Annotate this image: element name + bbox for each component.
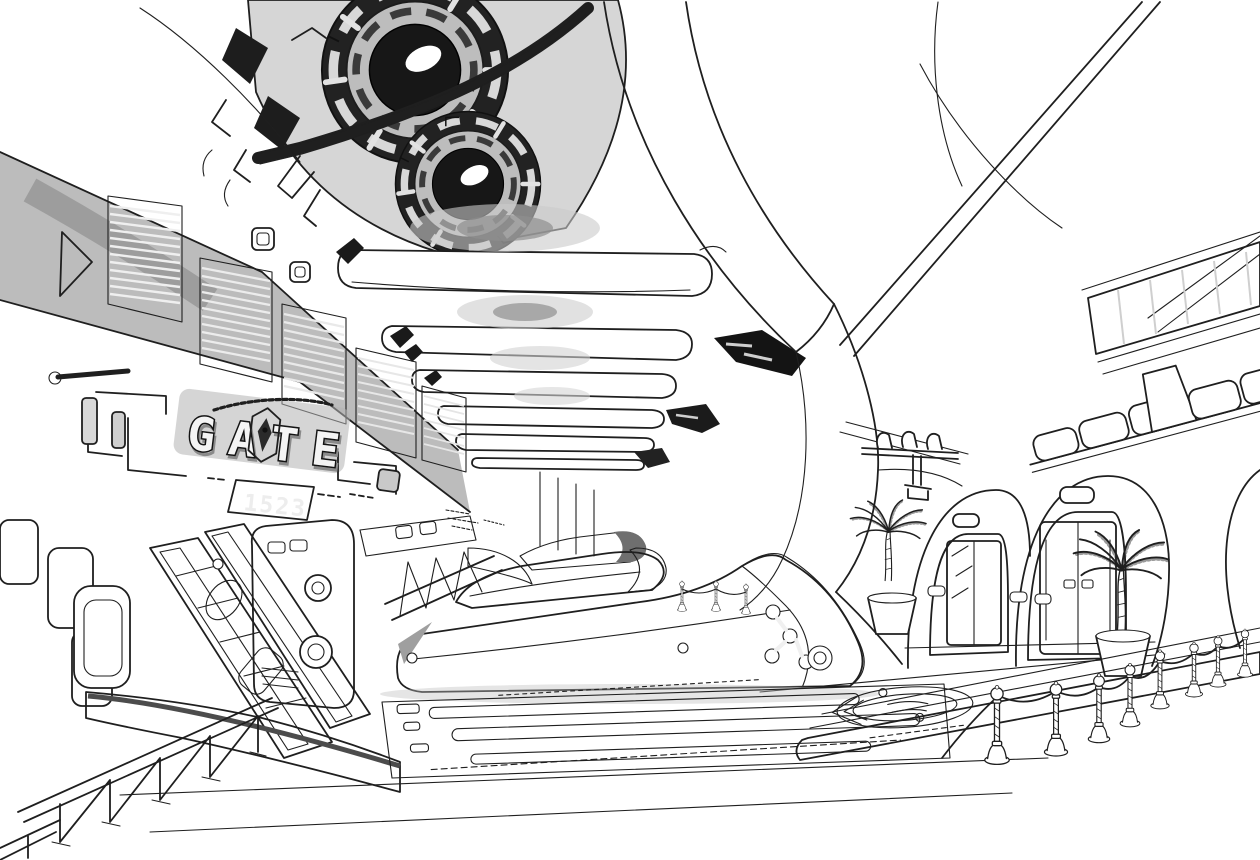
doorway-left <box>928 514 1027 655</box>
door-lamp-right <box>1060 487 1094 503</box>
distant-rope-barrier <box>677 581 751 615</box>
left-wall-pipe <box>49 371 128 384</box>
gate-hall-illustration: GATE GATE 1523 <box>0 0 1260 860</box>
stanchion <box>1151 650 1169 709</box>
distant-sign-scribbles <box>446 510 504 530</box>
right-glazing-beams <box>840 2 1260 356</box>
palm-tree-left <box>850 500 926 634</box>
gate-number-text: 1523 <box>242 490 308 522</box>
mid-gantry-truss <box>385 548 532 620</box>
door-lamp-left <box>953 514 979 527</box>
right-window-band <box>1082 232 1260 374</box>
wall-hook-rail <box>840 422 968 500</box>
platform-sleds <box>380 531 880 704</box>
sled-circuit-holes <box>765 605 832 670</box>
gate-number-plate: 1523 <box>208 478 340 523</box>
ceiling-beams <box>336 204 712 556</box>
wall-bench-band <box>1015 334 1260 473</box>
stanchion <box>1186 642 1203 697</box>
gate-sign-flourish-left <box>82 392 186 476</box>
rope-barrier <box>942 629 1252 764</box>
concept-art-page: GATE GATE 1523 <box>0 0 1260 860</box>
